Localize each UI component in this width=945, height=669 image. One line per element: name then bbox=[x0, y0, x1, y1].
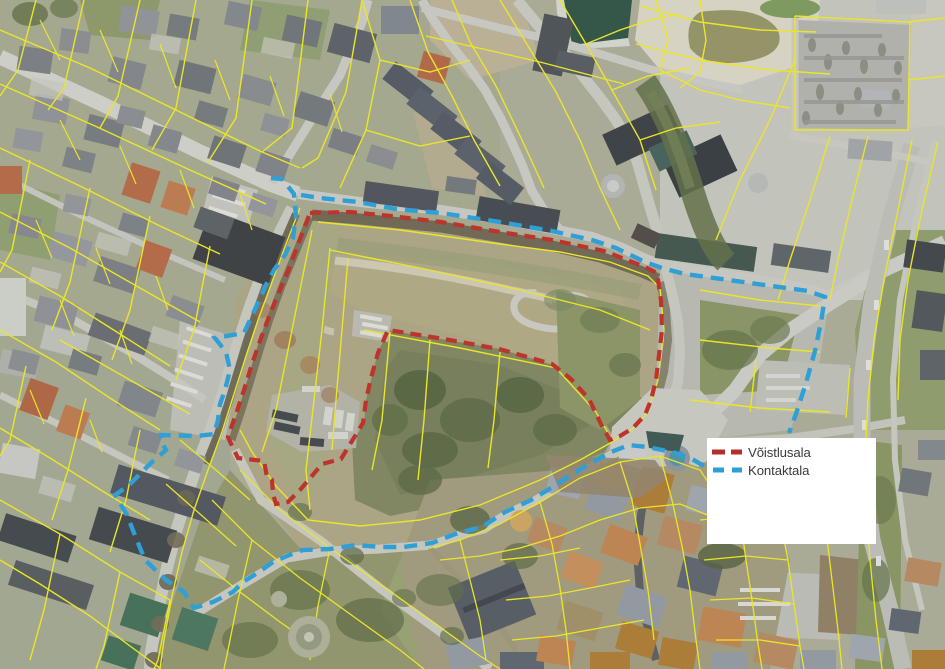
svg-text:Kontaktala: Kontaktala bbox=[748, 463, 810, 478]
svg-text:Võistlusala: Võistlusala bbox=[748, 445, 811, 460]
